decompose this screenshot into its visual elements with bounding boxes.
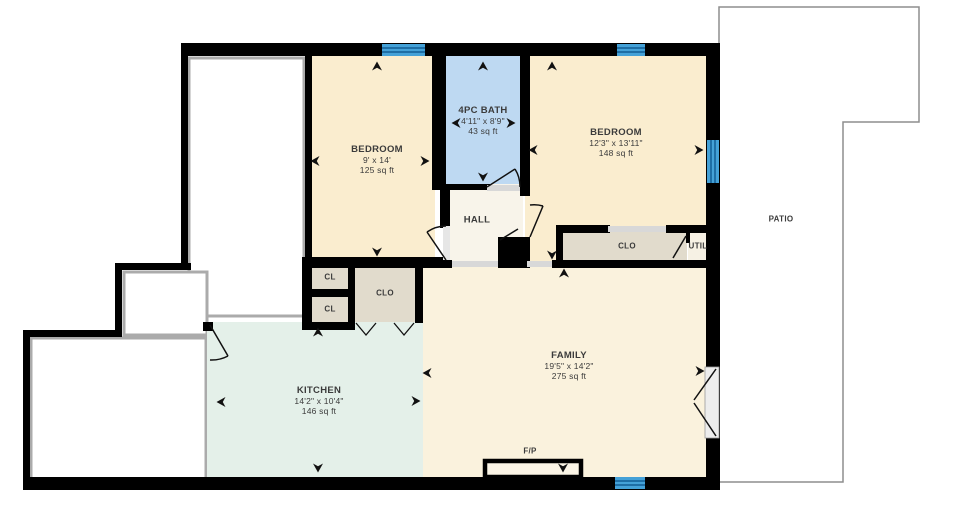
window-right-bedroom2-icon [707, 140, 719, 183]
door-slab-bedroom1 [443, 226, 450, 260]
family-floor [423, 266, 708, 478]
wall-bedroom1-bath [432, 56, 446, 190]
wall-left-upper [181, 43, 188, 270]
window-bottom-family-icon [615, 477, 645, 489]
wall-step1-h [115, 263, 191, 270]
wall-cl-bottom [302, 322, 355, 330]
fireplace-box [485, 461, 581, 477]
closet-left-floor [353, 264, 417, 324]
wall-bath-bottom [446, 184, 490, 190]
wall-hall-se-stub [498, 237, 530, 268]
floor-plan: BEDROOM 9' x 14' 125 sq ft 4PC BATH 4'11… [0, 0, 960, 531]
wall-cl-left [302, 257, 312, 330]
wall-step2-h [23, 330, 122, 337]
threshold-bath-hall [487, 185, 520, 191]
wall-family-top-c [552, 260, 720, 268]
utility-floor [688, 233, 706, 262]
wall-bedroom1-left [305, 56, 312, 257]
wall-step1-v [115, 263, 122, 337]
wall-closet2-top-a [556, 225, 610, 233]
wall-closet2-top-b [666, 225, 710, 233]
patio-outline [719, 7, 919, 482]
outside-area-lower [31, 338, 206, 479]
bedroom2-floor [525, 56, 709, 232]
patio-door-opening [705, 367, 719, 438]
kitchen-floor [207, 322, 423, 478]
wall-hall-left [440, 190, 450, 228]
closet-cl1-floor [310, 264, 350, 291]
threshold-hall-family [452, 261, 498, 267]
wall-family-top-a [420, 260, 452, 268]
threshold-bedroom2-family [527, 261, 552, 267]
wall-bath-bedroom2 [520, 56, 530, 196]
bedroom1-floor [309, 56, 435, 261]
outside-area-step [124, 272, 207, 335]
wall-left-lower [23, 330, 30, 490]
wall-cl-clo [348, 257, 355, 330]
window-top-bedroom1-icon [382, 44, 425, 56]
wall-clo-util-divider [686, 233, 690, 243]
closet-bedroom2-floor [560, 230, 687, 262]
floor-plan-canvas [0, 0, 960, 531]
slider-closet-bedroom2 [608, 226, 666, 232]
window-top-bedroom2-icon [617, 44, 645, 56]
closet-cl2-floor [310, 295, 350, 324]
